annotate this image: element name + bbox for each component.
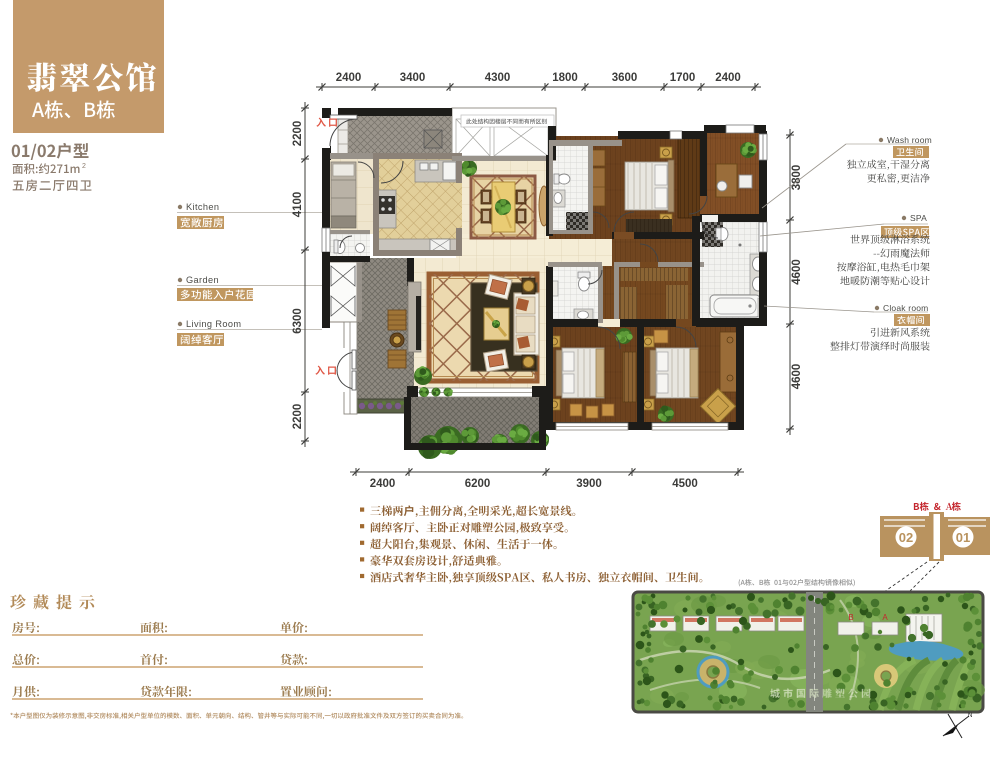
svg-text:2400: 2400	[370, 478, 396, 490]
svg-text:Living Room: Living Room	[186, 319, 241, 329]
svg-text:Kitchen: Kitchen	[186, 202, 219, 212]
svg-text:6200: 6200	[465, 478, 491, 490]
svg-text:4500: 4500	[672, 478, 698, 490]
svg-text:Garden: Garden	[186, 275, 219, 285]
svg-text:4100: 4100	[292, 192, 304, 218]
svg-text:3900: 3900	[576, 478, 602, 490]
svg-text:1700: 1700	[670, 72, 696, 84]
svg-text:Cloak room: Cloak room	[883, 303, 928, 313]
svg-text:1800: 1800	[552, 72, 578, 84]
svg-text:6300: 6300	[292, 308, 304, 334]
svg-text:01: 01	[956, 530, 970, 545]
svg-text:Wash room: Wash room	[887, 135, 932, 145]
svg-text:A: A	[882, 613, 888, 622]
svg-text:4600: 4600	[791, 364, 803, 390]
svg-text:B: B	[848, 613, 853, 622]
svg-text:2400: 2400	[715, 72, 741, 84]
svg-text:4600: 4600	[791, 259, 803, 285]
svg-text:4300: 4300	[485, 72, 511, 84]
svg-text:2400: 2400	[336, 72, 362, 84]
svg-text:3600: 3600	[612, 72, 638, 84]
svg-text:2200: 2200	[292, 404, 304, 430]
svg-text:2200: 2200	[292, 121, 304, 147]
svg-text:02: 02	[899, 530, 913, 545]
svg-text:3400: 3400	[400, 72, 426, 84]
svg-text:N: N	[968, 713, 972, 719]
svg-text:3800: 3800	[791, 165, 803, 191]
svg-text:SPA: SPA	[910, 213, 927, 223]
svg-text:2: 2	[82, 163, 86, 170]
